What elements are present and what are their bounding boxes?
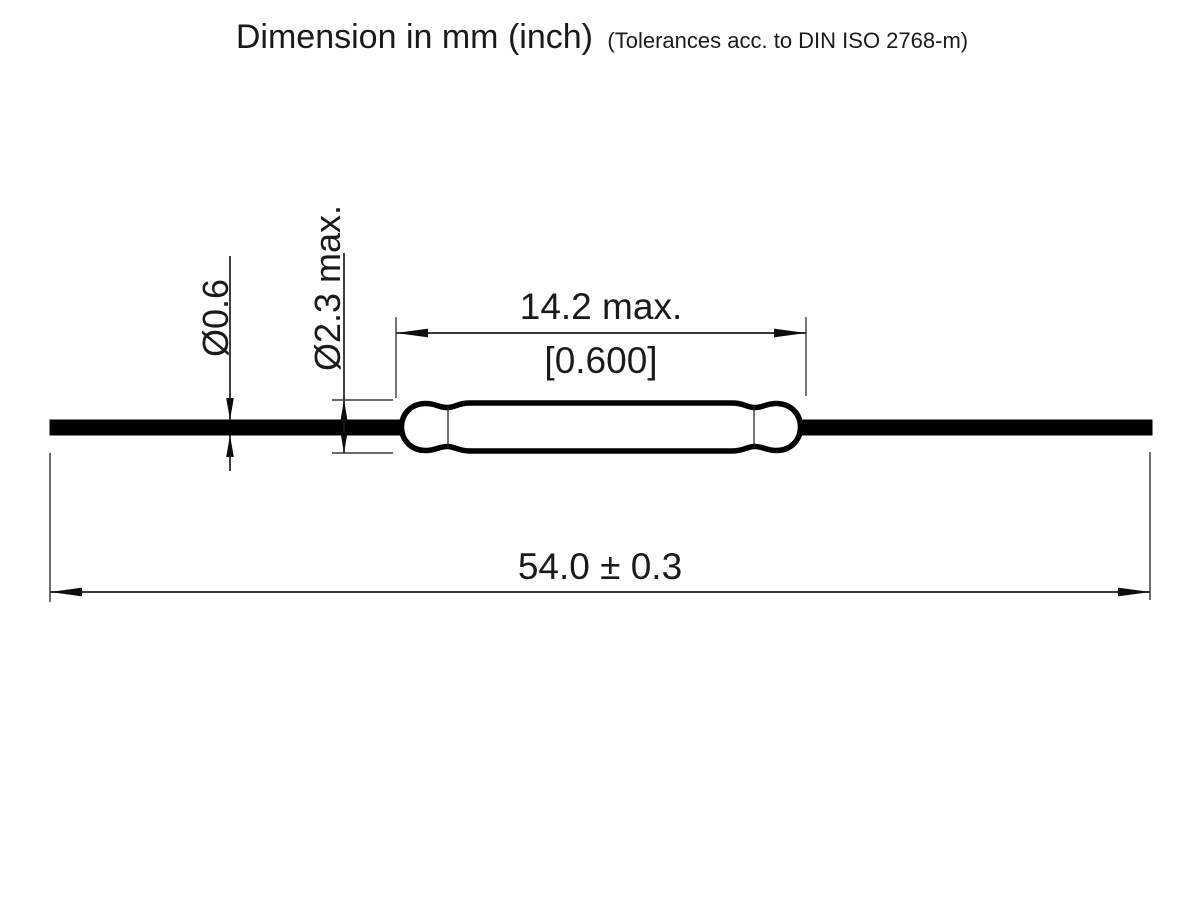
arrowhead-up-icon [226, 435, 234, 457]
arrowhead-left-icon [396, 329, 428, 338]
technical-drawing-page: Dimension in mm (inch) (Tolerances acc. … [0, 0, 1200, 900]
dim-total-length: 54.0 ± 0.3 [50, 452, 1150, 602]
title-line: Dimension in mm (inch) (Tolerances acc. … [236, 18, 968, 56]
arrowhead-right-icon [774, 329, 806, 338]
arrowhead-down-icon [226, 398, 234, 420]
reed-switch-dimension-drawing: Dimension in mm (inch) (Tolerances acc. … [0, 0, 1200, 900]
arrowhead-left-icon [50, 588, 82, 597]
total-length-label: 54.0 ± 0.3 [518, 546, 682, 587]
dim-glass-diameter: Ø2.3 max. [307, 205, 393, 453]
dim-glass-length: 14.2 max. [0.600] [396, 286, 806, 398]
page-title: Dimension in mm (inch) [236, 18, 593, 56]
arrowhead-up-icon [340, 400, 348, 422]
arrowhead-down-icon [340, 431, 348, 453]
arrowhead-right-icon [1118, 588, 1150, 597]
glass-length-mm-label: 14.2 max. [520, 286, 682, 327]
glass-length-inch-label: [0.600] [544, 340, 657, 381]
tolerance-note: (Tolerances acc. to DIN ISO 2768-m) [607, 28, 968, 53]
dim-lead-diameter: Ø0.6 [195, 256, 236, 471]
lead-diameter-label: Ø0.6 [195, 279, 236, 357]
glass-diameter-label: Ø2.3 max. [307, 205, 348, 371]
glass-body [402, 403, 801, 451]
